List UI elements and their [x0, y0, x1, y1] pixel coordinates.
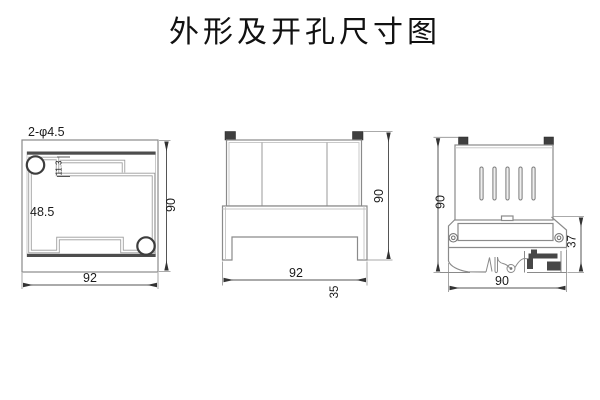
vent-slot	[493, 167, 496, 200]
rail-clip-tab-left	[459, 137, 469, 145]
vent-slot	[506, 167, 509, 200]
drawing-page: 外形及开孔尺寸图 11.3 2-φ4.5 48.5 90 92	[0, 0, 600, 400]
rail-view: 90 37 90	[434, 137, 585, 292]
side-view: 90 92 35	[223, 132, 393, 299]
front-width-dim: 92	[83, 271, 97, 285]
side-flange	[223, 206, 368, 260]
vent-slot	[519, 167, 522, 200]
rail-height-dim: 90	[434, 195, 448, 209]
din-rail-profile	[525, 250, 567, 273]
mounting-hole-bottom-right	[137, 237, 154, 254]
notch-depth-dim: 11.3	[55, 160, 64, 176]
side-body	[227, 140, 362, 206]
vent-slot	[480, 167, 483, 200]
top-clip-left	[225, 132, 236, 141]
rail-clip-dim: 37	[567, 235, 579, 248]
front-bottom-band	[27, 254, 156, 257]
drawing-title: 外形及开孔尺寸图	[169, 16, 441, 49]
rail-bottom-dim: 90	[495, 274, 509, 288]
drawing-canvas: 外形及开孔尺寸图 11.3 2-φ4.5 48.5 90 92	[0, 0, 600, 400]
mounting-hole-top-left	[27, 156, 44, 173]
bezel-right-profile	[552, 217, 567, 248]
rail-body-latch	[502, 216, 514, 221]
front-height-dim: 90	[164, 198, 178, 212]
vent-slot	[532, 167, 535, 200]
front-panel-face	[458, 224, 553, 241]
cutout-step-line	[60, 162, 124, 173]
rail-body	[455, 145, 553, 220]
holes-label: 2-φ4.5	[28, 125, 65, 139]
side-width-dim: 92	[289, 266, 303, 280]
top-clip-right	[353, 132, 364, 141]
rail-clip-tab-right	[544, 137, 554, 145]
inner-height-dim: 48.5	[30, 205, 54, 219]
front-top-band	[27, 152, 156, 155]
side-height-dim: 90	[372, 189, 386, 203]
side-depth-dim: 35	[329, 286, 341, 299]
front-view: 11.3 2-φ4.5 48.5 90 92	[22, 125, 178, 289]
